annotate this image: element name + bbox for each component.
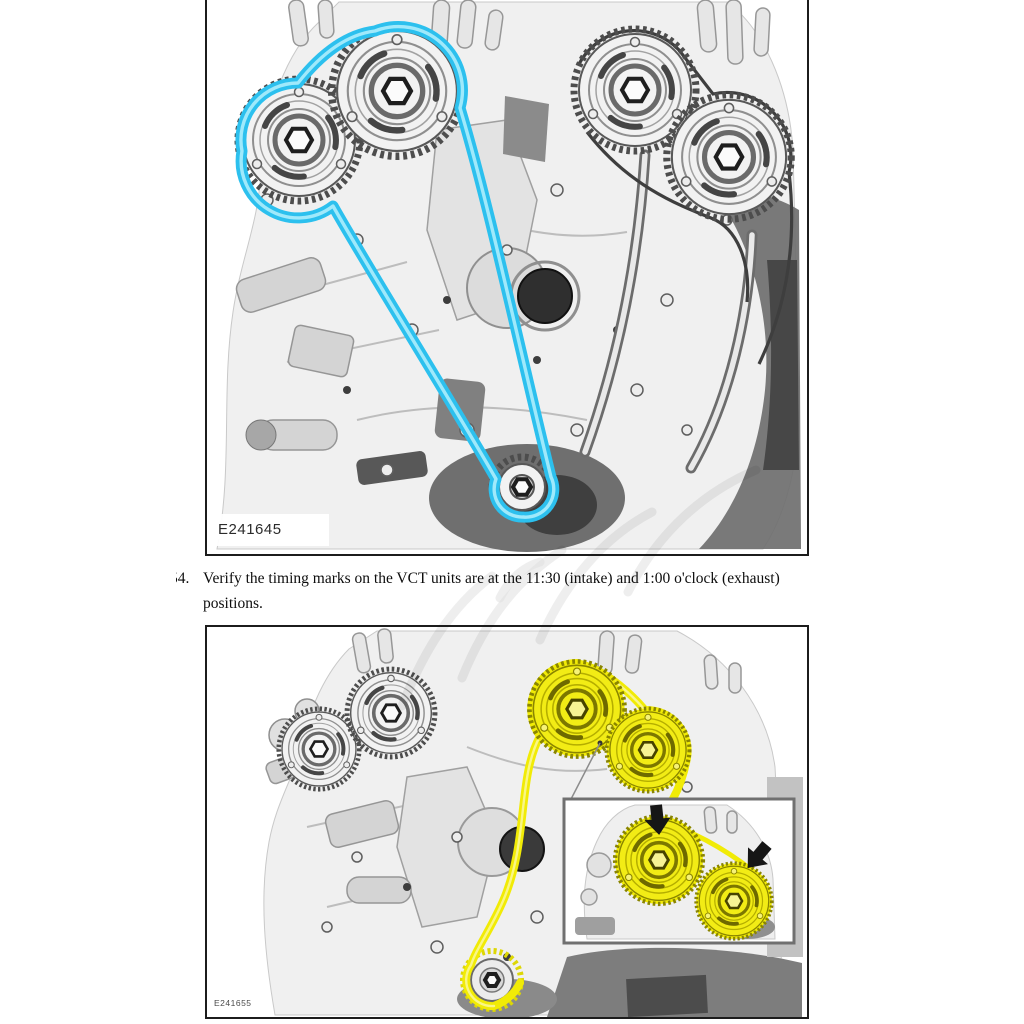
figure-intake-timing-chain: E241645 [205, 0, 809, 556]
figure-exhaust-timing-marks: E241655 [205, 625, 809, 1019]
engine-front-illustration-blue-chain [207, 0, 807, 552]
figure-id-label: E241645 [216, 520, 288, 539]
exhaust-vct-unit-2 [607, 709, 690, 792]
procedure-step: 54. Verify the timing marks on the VCT u… [176, 566, 816, 616]
engine-front-illustration-yellow-chain [207, 627, 807, 1017]
step-number: 54. [176, 566, 203, 616]
figure-id-label: E241655 [212, 997, 258, 1009]
inset-exhaust-vct-unit-2 [696, 863, 772, 939]
step-instruction: Verify the timing marks on the VCT units… [203, 566, 816, 616]
inset-detail-view [564, 799, 794, 943]
service-manual-page: E241645 54. Verify the timing marks on t… [0, 0, 1024, 1024]
